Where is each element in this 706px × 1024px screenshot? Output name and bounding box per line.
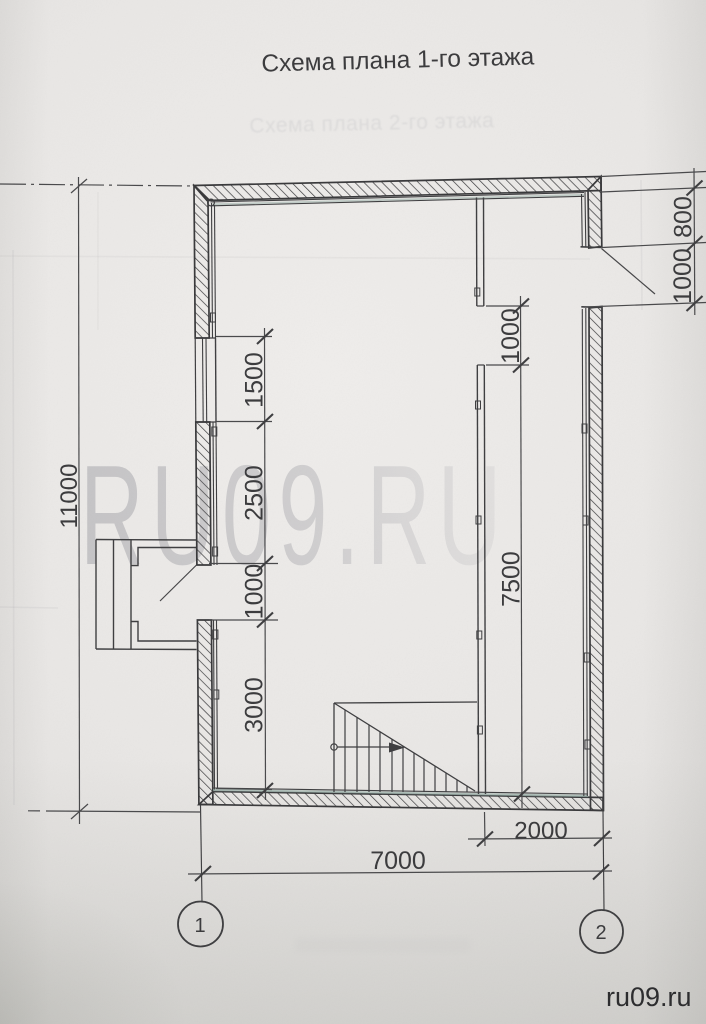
svg-text:800: 800	[670, 196, 698, 238]
svg-text:1000: 1000	[241, 564, 269, 620]
svg-text:RU09.RU: RU09.RU	[80, 437, 509, 596]
svg-text:1: 1	[194, 915, 205, 937]
svg-text:ru09.ru: ru09.ru	[606, 982, 692, 1012]
svg-text:11000: 11000	[56, 464, 83, 529]
svg-text:1500: 1500	[241, 352, 269, 408]
svg-text:7500: 7500	[498, 551, 526, 607]
svg-text:7000: 7000	[370, 847, 426, 875]
svg-text:2000: 2000	[514, 818, 567, 845]
svg-text:1000: 1000	[497, 308, 525, 364]
svg-text:2500: 2500	[241, 465, 269, 521]
svg-text:3000: 3000	[241, 677, 269, 733]
svg-text:1000: 1000	[669, 248, 697, 304]
svg-text:2: 2	[595, 922, 606, 944]
